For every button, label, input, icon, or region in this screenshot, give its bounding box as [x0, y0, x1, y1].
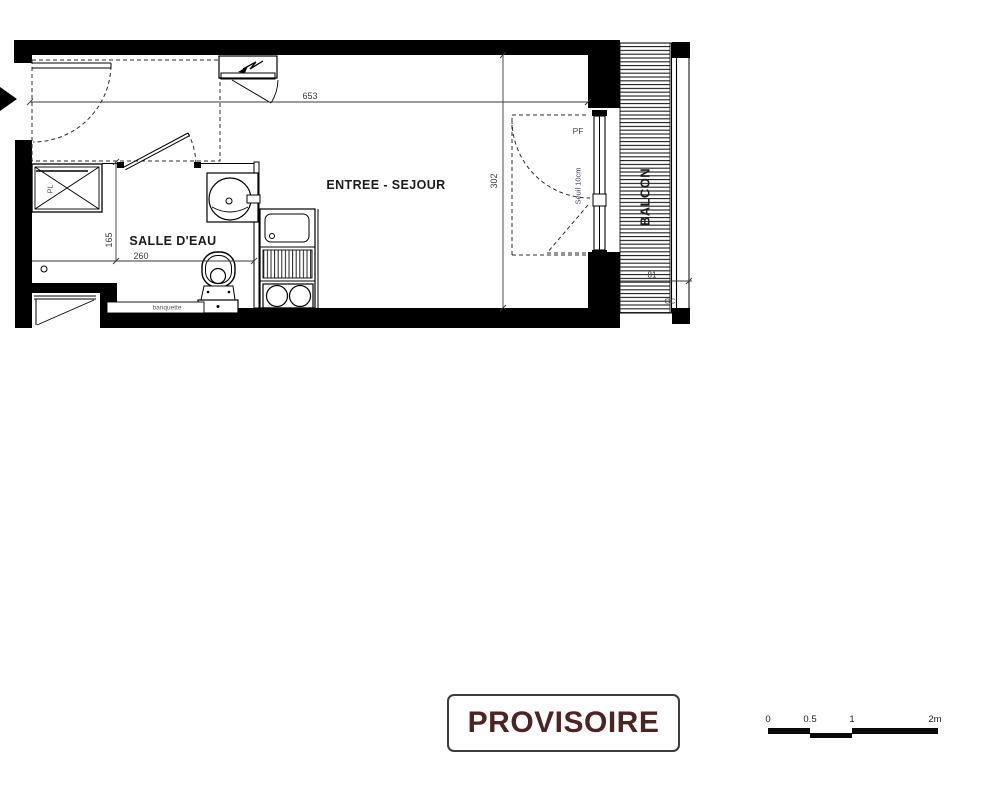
dim-label-653: 653 [302, 91, 317, 101]
dim-label-260: 260 [133, 251, 148, 261]
bathroom-door [117, 133, 201, 170]
neighbour-door-detail [34, 296, 96, 325]
scale-label-2m: 2m [928, 714, 941, 725]
balcony-column-top [672, 42, 690, 58]
window-tilt-symbol [547, 205, 588, 253]
dim-label-81: 81 [648, 271, 657, 280]
toilet-base [201, 286, 235, 300]
toilet-bowl-outer [202, 252, 235, 287]
entrance-arrow-icon [0, 87, 17, 111]
entrance-door-swing-arc [33, 66, 111, 142]
basin-tap [247, 195, 260, 203]
wall-top [14, 40, 595, 55]
label-gc: GC [664, 297, 675, 306]
washbasin [207, 173, 260, 222]
door-stop-symbol [41, 266, 47, 272]
window-porte-fenetre [592, 110, 607, 256]
entrance-door [32, 63, 111, 68]
drainer-hatch [263, 250, 312, 278]
label-pl: PL [48, 185, 55, 194]
wall-left [15, 140, 32, 328]
balcony-column-bottom [672, 308, 690, 324]
wall-window-lower [588, 252, 620, 328]
label-seuil: Seuil 10cm [574, 167, 583, 204]
door-jamb-hinge [117, 162, 124, 168]
dim-label-302: 302 [489, 173, 499, 188]
label-banquette: banquette [153, 305, 182, 312]
window-cap-bottom [592, 250, 607, 256]
panel-door-leaf [232, 80, 271, 103]
window-cap-top [592, 110, 607, 116]
electrical-panel [219, 56, 278, 103]
room-label-balcon: BALCON [638, 168, 653, 226]
scale-segment-3 [852, 728, 938, 734]
room-label-entree-sejour: ENTREE - SEJOUR [326, 178, 445, 192]
wall-window-upper [588, 40, 620, 108]
room-label-salle-deau: SALLE D'EAU [129, 234, 216, 248]
window-handle [593, 194, 606, 206]
panel-door-arc [271, 80, 278, 103]
scale-label-05: 0.5 [803, 714, 816, 725]
scale-segment-2 [810, 733, 852, 739]
entrance-soffit-outline [32, 60, 220, 161]
scale-label-1: 1 [849, 714, 854, 725]
scale-bar: 0 0.5 1 2m [760, 710, 950, 744]
label-pf: PF [573, 126, 584, 136]
provisoire-text: PROVISOIRE [468, 706, 660, 740]
closet-placard [32, 164, 102, 212]
scale-label-0: 0 [765, 714, 770, 725]
scale-segment-1 [768, 728, 810, 734]
provisoire-stamp: PROVISOIRE [447, 694, 680, 752]
floor-plan: ENTREE - SEJOUR SALLE D'EAU BALCON 653 3… [0, 0, 982, 800]
dim-label-165: 165 [104, 232, 114, 247]
kitchenette [260, 209, 318, 308]
floor-plan-drawing [0, 0, 982, 800]
door-jamb-strike [194, 162, 201, 168]
wall-top-left-stub [14, 40, 32, 63]
